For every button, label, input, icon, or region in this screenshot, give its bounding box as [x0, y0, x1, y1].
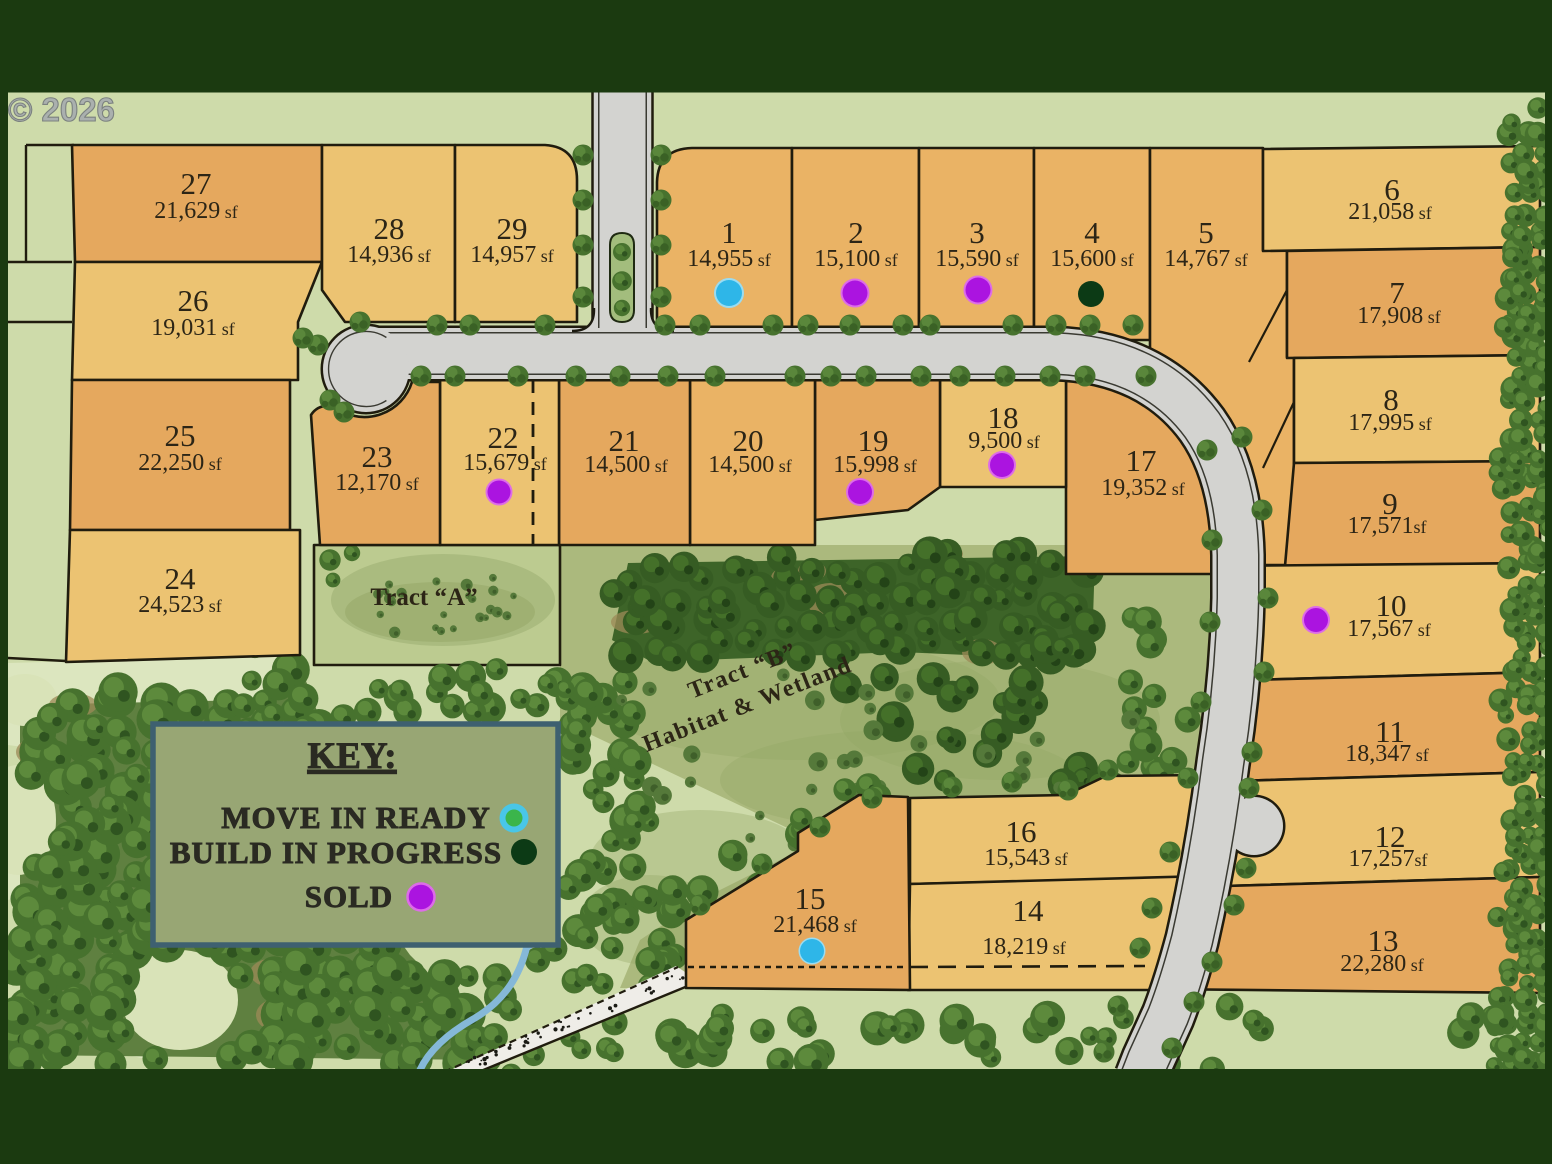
svg-text:14: 14 — [1013, 893, 1045, 928]
svg-text:17,995 sf: 17,995 sf — [1348, 410, 1432, 436]
svg-text:22,280 sf: 22,280 sf — [1340, 951, 1424, 977]
svg-text:14,936 sf: 14,936 sf — [347, 242, 431, 268]
svg-text:19,031 sf: 19,031 sf — [151, 315, 235, 341]
svg-text:16: 16 — [1006, 814, 1037, 849]
svg-text:© 2026: © 2026 — [8, 91, 115, 128]
svg-text:19,352 sf: 19,352 sf — [1101, 475, 1185, 501]
svg-text:15,998 sf: 15,998 sf — [833, 452, 917, 478]
svg-text:BUILD IN PROGRESS: BUILD IN PROGRESS — [170, 835, 502, 870]
svg-text:4: 4 — [1084, 215, 1100, 250]
svg-text:24,523 sf: 24,523 sf — [138, 592, 222, 618]
svg-text:15,100 sf: 15,100 sf — [814, 246, 898, 272]
svg-text:15,679 sf: 15,679 sf — [463, 450, 547, 476]
svg-text:1: 1 — [721, 215, 737, 250]
svg-text:18,219 sf: 18,219 sf — [982, 934, 1066, 960]
svg-text:5: 5 — [1198, 215, 1214, 250]
svg-text:14,955 sf: 14,955 sf — [687, 246, 771, 272]
svg-text:9,500 sf: 9,500 sf — [968, 428, 1040, 454]
svg-text:26: 26 — [178, 283, 209, 318]
svg-text:MOVE IN READY: MOVE IN READY — [221, 800, 491, 835]
svg-text:17,567 sf: 17,567 sf — [1347, 616, 1431, 642]
svg-text:15,543 sf: 15,543 sf — [984, 845, 1068, 871]
svg-text:21,468 sf: 21,468 sf — [773, 912, 857, 938]
svg-text:29: 29 — [497, 211, 528, 246]
svg-text:15,590 sf: 15,590 sf — [935, 246, 1019, 272]
svg-text:14,500 sf: 14,500 sf — [708, 452, 792, 478]
svg-text:27: 27 — [181, 166, 212, 201]
svg-text:21,629 sf: 21,629 sf — [154, 198, 238, 224]
svg-text:17,257sf: 17,257sf — [1349, 846, 1428, 872]
svg-text:17,571sf: 17,571sf — [1348, 513, 1427, 539]
svg-text:KEY:: KEY: — [307, 736, 396, 777]
svg-text:14,767 sf: 14,767 sf — [1164, 246, 1248, 272]
svg-text:18,347 sf: 18,347 sf — [1345, 741, 1429, 767]
svg-text:3: 3 — [969, 215, 985, 250]
svg-text:14,500 sf: 14,500 sf — [584, 452, 668, 478]
svg-text:21,058 sf: 21,058 sf — [1348, 199, 1432, 225]
svg-text:Tract “A”: Tract “A” — [370, 584, 477, 611]
svg-text:15: 15 — [795, 881, 826, 916]
svg-text:24: 24 — [165, 561, 197, 596]
svg-text:22,250 sf: 22,250 sf — [138, 450, 222, 476]
svg-text:28: 28 — [374, 211, 405, 246]
svg-text:15,600 sf: 15,600 sf — [1050, 246, 1134, 272]
svg-text:2: 2 — [848, 215, 864, 250]
svg-text:14,957 sf: 14,957 sf — [470, 242, 554, 268]
svg-text:25: 25 — [165, 418, 196, 453]
svg-text:12,170 sf: 12,170 sf — [335, 470, 419, 496]
svg-text:17,908 sf: 17,908 sf — [1357, 303, 1441, 329]
svg-text:17: 17 — [1126, 443, 1157, 478]
svg-text:SOLD: SOLD — [305, 879, 393, 914]
svg-text:23: 23 — [362, 439, 393, 474]
